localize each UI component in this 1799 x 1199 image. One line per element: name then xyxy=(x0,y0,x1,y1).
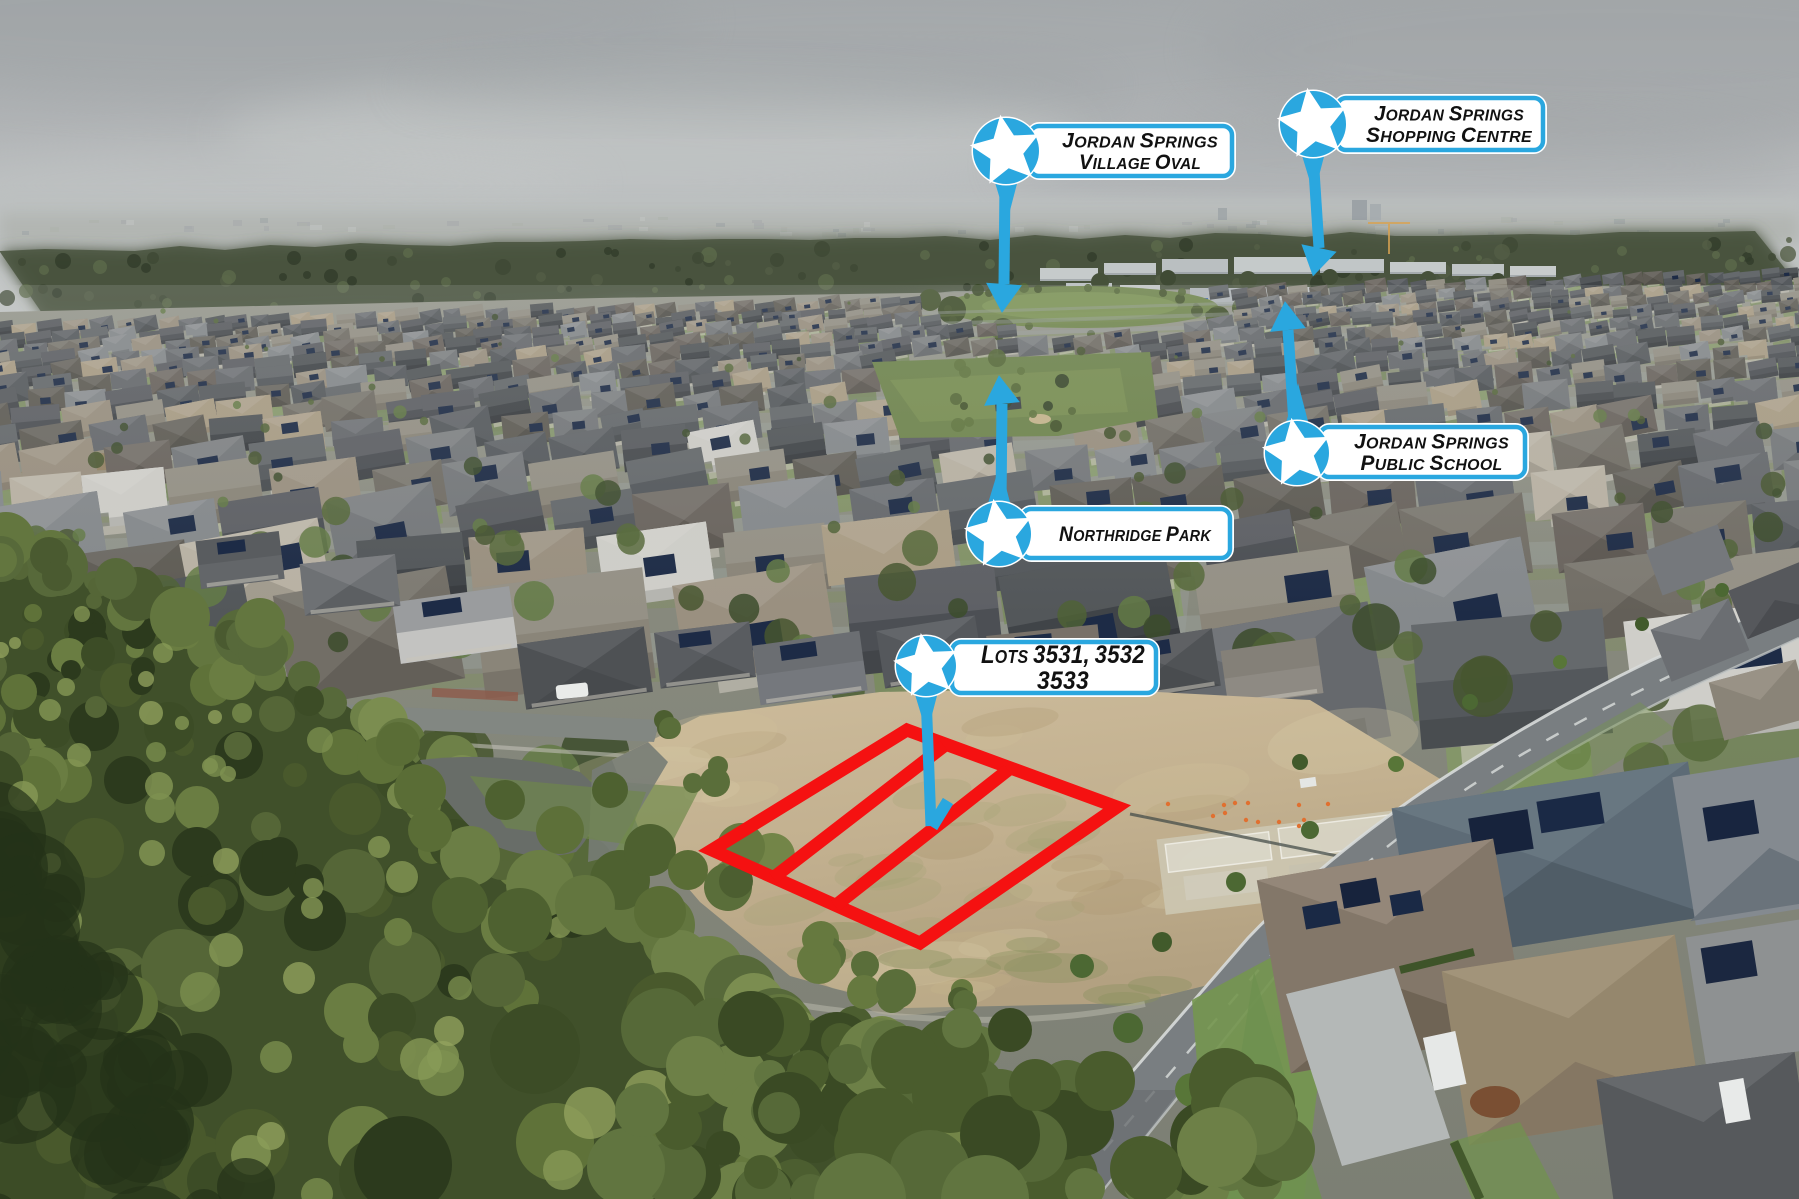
svg-text:3533: 3533 xyxy=(1037,667,1089,695)
